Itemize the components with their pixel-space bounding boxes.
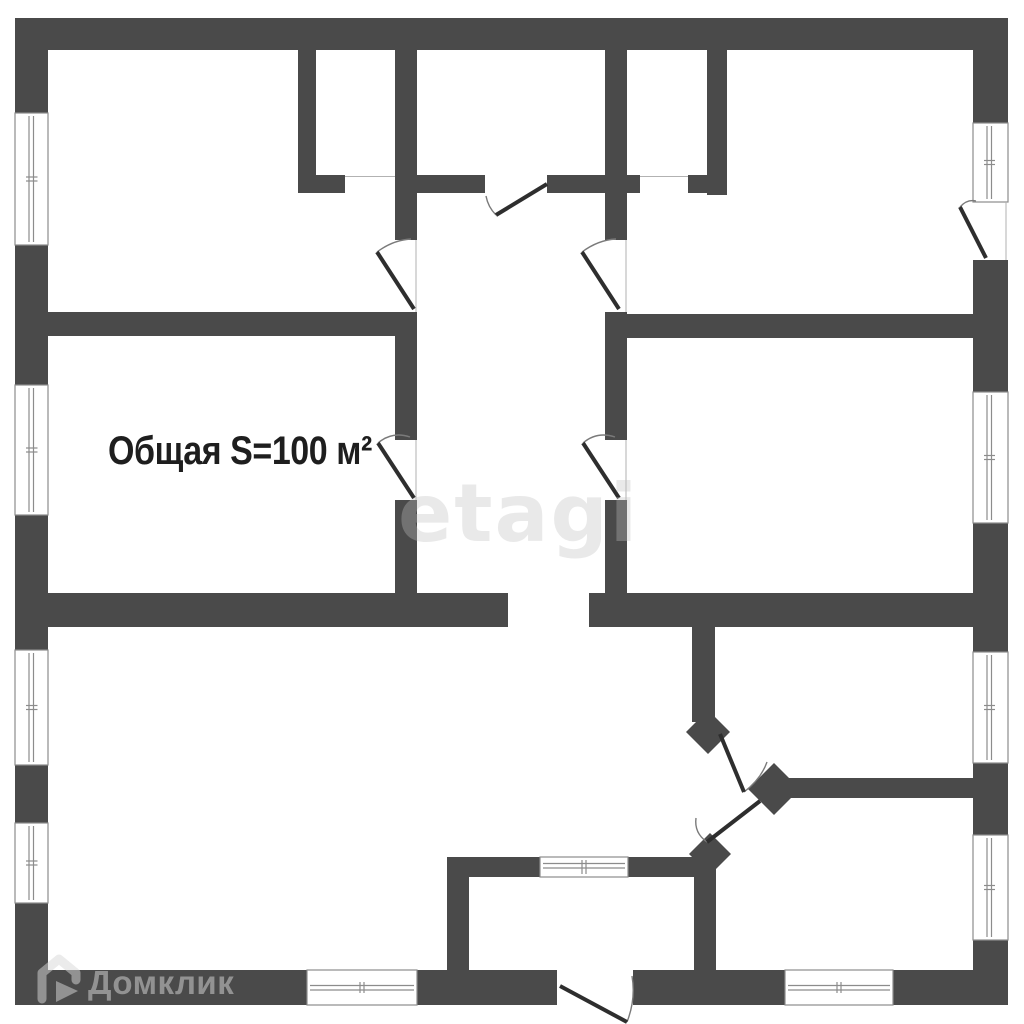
- wall-segment: [15, 765, 48, 823]
- door-leaf: [720, 734, 744, 792]
- wall-segment: [633, 970, 785, 1005]
- window-glass: [785, 970, 893, 1005]
- window-glass: [15, 650, 48, 765]
- wall-segment: [688, 175, 707, 193]
- brand-name: Домклик: [88, 964, 234, 1001]
- window: [973, 835, 1008, 940]
- wall-segment: [547, 175, 605, 193]
- wall-segment: [417, 175, 485, 193]
- floor-plan-canvas: Общая S=100 м² etagi Домклик: [0, 0, 1024, 1024]
- wall-segment: [973, 260, 1008, 392]
- window: [15, 113, 48, 245]
- window-glass: [15, 113, 48, 245]
- watermark-etagi: etagi: [398, 467, 639, 560]
- window: [15, 823, 48, 903]
- area-label-group: Общая S=100 м²: [108, 427, 372, 472]
- wall-segment: [15, 515, 48, 650]
- window: [785, 970, 893, 1005]
- wall-segment: [417, 970, 557, 1005]
- wall-segment: [973, 50, 1008, 123]
- wall-segment: [973, 763, 1008, 835]
- wall-segment: [15, 18, 48, 113]
- door-leaf: [582, 252, 619, 309]
- window-glass: [973, 392, 1008, 523]
- wall-segment: [605, 312, 627, 440]
- floor-plan-image: Общая S=100 м² etagi Домклик: [0, 0, 1024, 1024]
- wall-segment: [589, 593, 973, 627]
- window: [973, 123, 1008, 202]
- wall-segment: [15, 245, 48, 385]
- door-arc: [582, 239, 616, 252]
- wall-segment: [893, 970, 1008, 1005]
- wall-segment: [15, 18, 1008, 50]
- door-leaf: [707, 801, 760, 842]
- window-glass: [973, 652, 1008, 763]
- wall-segment: [785, 778, 973, 798]
- wall-segment: [447, 857, 469, 970]
- wall-segment: [395, 50, 417, 240]
- wall-segment: [627, 175, 640, 193]
- wall-segment: [694, 859, 716, 970]
- door-arc: [377, 239, 411, 252]
- wall-segment: [627, 314, 973, 338]
- window-glass: [15, 823, 48, 903]
- window: [540, 857, 628, 877]
- wall-segment: [48, 593, 508, 627]
- window: [307, 970, 417, 1005]
- window: [15, 385, 48, 515]
- wall-segment: [692, 627, 715, 722]
- door-leaf: [960, 207, 986, 258]
- door-leaf: [560, 986, 627, 1022]
- wall-segment: [298, 50, 316, 175]
- window-glass: [307, 970, 417, 1005]
- wall-segment: [605, 50, 627, 240]
- door-arc: [627, 976, 633, 1022]
- window: [973, 392, 1008, 523]
- window-glass: [15, 385, 48, 515]
- doorway-lines: [345, 177, 1006, 501]
- area-label: Общая S=100 м²: [108, 427, 372, 472]
- wall-segment: [707, 50, 727, 195]
- window-glass: [540, 857, 628, 877]
- wall-segment: [628, 857, 697, 877]
- door-leaf: [496, 184, 547, 215]
- door-leaf: [377, 252, 414, 309]
- wall-segment: [973, 523, 1008, 652]
- wall-segment: [48, 312, 417, 336]
- window: [973, 652, 1008, 763]
- wall-segment: [298, 175, 345, 193]
- window-glass: [973, 123, 1008, 202]
- door-arc: [486, 196, 496, 215]
- window: [15, 650, 48, 765]
- window-glass: [973, 835, 1008, 940]
